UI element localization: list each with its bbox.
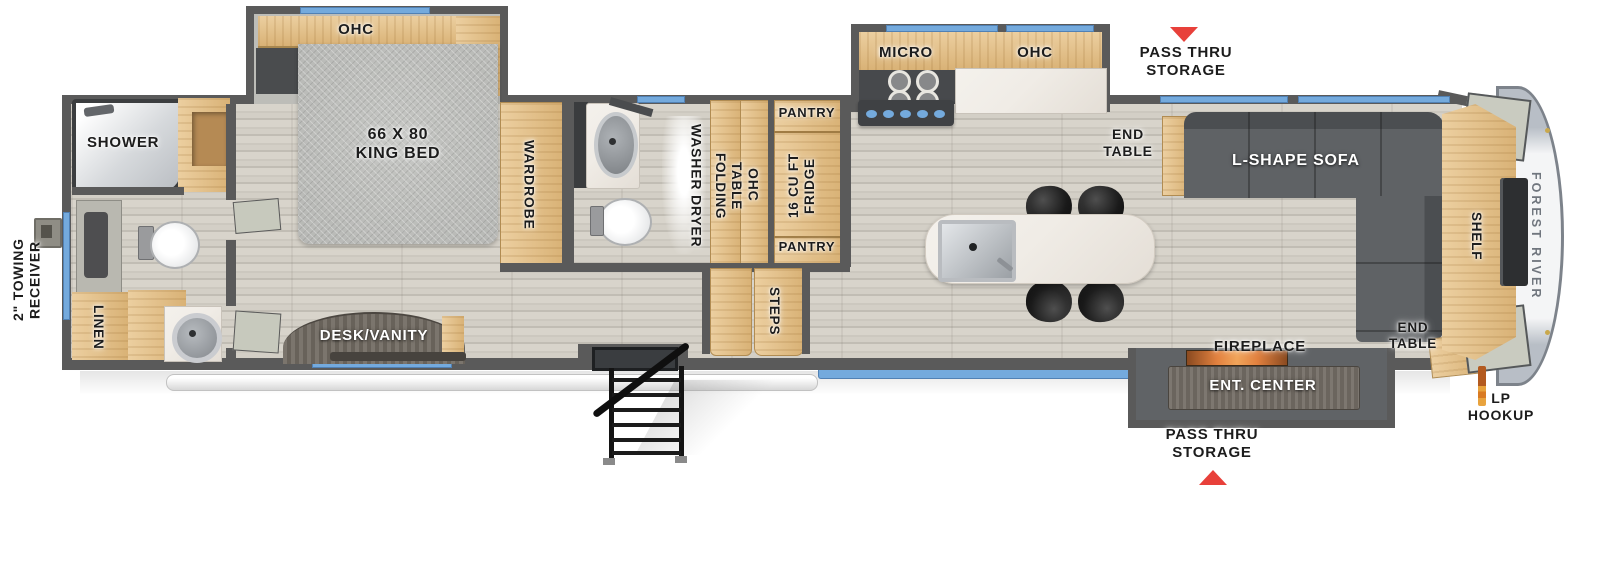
steps-label: STEPS [766, 280, 782, 342]
bath-door [233, 198, 282, 234]
bedroom-slide-wall-right [500, 6, 508, 104]
bath-vanity-inset [84, 212, 108, 278]
fridge-seam-bottom [774, 236, 840, 238]
shower-label: SHOWER [87, 134, 159, 152]
fridge-label: 16 CU FT FRIDGE [786, 138, 818, 234]
fireplace-label: FIREPLACE [1208, 338, 1312, 356]
shelf-label: SHELF [1468, 204, 1484, 268]
king-bed-label: 66 X 80 KING BED [328, 126, 468, 164]
pass-thru-top-line1: PASS THRU [1124, 44, 1248, 62]
kitchen-ohc-label: OHC [990, 44, 1080, 62]
bed-line2: KING BED [328, 145, 468, 164]
end-table-bottom-label: END TABLE [1382, 320, 1444, 352]
stove-knob-4 [917, 110, 928, 118]
midbath-toilet-tank [590, 206, 604, 236]
closet-door [233, 310, 282, 353]
pass-thru-top-label: PASS THRU STORAGE [1124, 44, 1248, 79]
wardrobe-label: WARDROBE [521, 118, 538, 252]
sink-drain [189, 330, 196, 337]
end-table-top-label: END TABLE [1092, 126, 1164, 159]
bath-inner-wall [72, 187, 184, 195]
rear-window [63, 212, 70, 320]
stove-knob-5 [934, 110, 945, 118]
midbath-sink-icon [594, 112, 638, 178]
micro-label: MICRO [866, 44, 946, 62]
bedroom-slide-window [300, 7, 430, 14]
lp-line2: HOOKUP [1448, 407, 1554, 424]
towing-line2: RECEIVER [27, 224, 44, 336]
end-table-bottom-line2: TABLE [1382, 336, 1444, 352]
linen-label: LINEN [90, 298, 106, 356]
pantry-bottom-label: PANTRY [775, 239, 839, 254]
step-rung-6 [612, 451, 681, 455]
pantry-top-label: PANTRY [775, 105, 839, 120]
folding-line2: TABLE [728, 118, 744, 254]
ent-slide-wall-left [1128, 348, 1136, 428]
steps-landing [710, 268, 752, 356]
bedroom-slide-wall-left [246, 6, 254, 104]
lp-hookup-label: LP HOOKUP [1448, 390, 1554, 423]
tv-icon [1500, 178, 1528, 286]
pass-thru-arrow-up-icon [1199, 470, 1227, 485]
kitchen-slide-wall-left [851, 24, 859, 112]
cap-screw-2 [1545, 128, 1550, 133]
living-window-2 [1298, 96, 1450, 103]
ent-center-label: ENT. CENTER [1196, 377, 1330, 395]
kitchen-window-2 [1006, 25, 1094, 32]
bedroom-ohc-label: OHC [326, 21, 386, 39]
fridge-line2: FRIDGE [802, 138, 818, 234]
sink-icon [172, 313, 222, 363]
bed-line1: 66 X 80 [328, 126, 468, 145]
step-rung-5 [612, 438, 681, 442]
step-rung-3 [612, 408, 681, 412]
brand-label: FOREST RIVER [1528, 148, 1543, 324]
steps-wall-right [802, 268, 810, 354]
ent-slide-wall-right [1387, 348, 1395, 428]
toilet-icon [150, 221, 200, 269]
folding-table-label: FOLDING TABLE [712, 118, 744, 254]
bath-bedroom-wall-2 [226, 240, 236, 306]
washer-dryer-label: WASHER DRYER [688, 116, 705, 256]
rv-floorplan: 2" TOWING RECEIVER SHOWER LINEN OHC 66 X… [0, 0, 1600, 568]
step-rung-4 [612, 423, 681, 427]
bedroom-nightstand-left [256, 48, 302, 94]
bath-cabinet-shelf [192, 112, 226, 166]
lp-line1: LP [1448, 390, 1554, 407]
folding-line1: FOLDING [712, 118, 728, 254]
fridge-seam-top [774, 131, 840, 133]
midbath-sink-drain [609, 138, 616, 145]
pass-thru-top-line2: STORAGE [1124, 62, 1248, 80]
midbath-toilet-icon [598, 198, 652, 246]
cap-screw-4 [1545, 330, 1550, 335]
island-sink-icon [938, 220, 1016, 282]
kitchen-wall [840, 100, 851, 267]
towing-receiver-label: 2" TOWING RECEIVER [10, 224, 43, 336]
pass-thru-bottom-line1: PASS THRU [1150, 426, 1274, 444]
kitchen-window-1 [886, 25, 998, 32]
bath-window [637, 96, 685, 103]
end-table-top-line2: TABLE [1092, 143, 1164, 160]
desk-bench [330, 352, 466, 361]
pass-thru-arrow-down-icon [1170, 27, 1198, 42]
pass-thru-bottom-line2: STORAGE [1150, 444, 1274, 462]
stove-knob-1 [866, 110, 877, 118]
end-table-top-line1: END [1092, 126, 1164, 143]
end-table-bottom-line1: END [1382, 320, 1444, 336]
steps-wall-left [702, 268, 710, 354]
sofa-label: L-SHAPE SOFA [1232, 152, 1360, 171]
kitchen-counter [955, 68, 1107, 114]
island-sink-drain [969, 243, 977, 251]
steps-foot-left [603, 458, 615, 465]
stove-knob-3 [900, 110, 911, 118]
wardrobe-wall [562, 102, 574, 267]
living-window-1 [1160, 96, 1288, 103]
desk-vanity-label: DESK/VANITY [298, 327, 450, 345]
hall-ohc-label: OHC [745, 150, 762, 220]
stove-knob-2 [883, 110, 894, 118]
fridge-line1: 16 CU FT [786, 138, 802, 234]
steps-foot-right [675, 456, 687, 463]
towing-line1: 2" TOWING [10, 224, 27, 336]
bath-bedroom-wall-1 [226, 104, 236, 200]
pass-thru-bottom-label: PASS THRU STORAGE [1150, 426, 1274, 461]
